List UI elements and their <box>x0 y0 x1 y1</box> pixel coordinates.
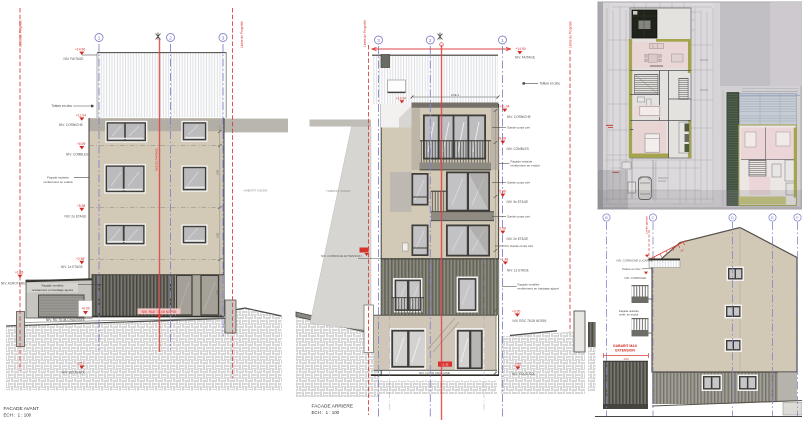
svg-text:HABITAT VOISIN: HABITAT VOISIN <box>244 188 268 192</box>
svg-text:NIV. 3e ETAGE: NIV. 3e ETAGE <box>507 200 529 204</box>
svg-text:NIV. FAITAGE: NIV. FAITAGE <box>515 56 535 60</box>
svg-text:NIV. SOUS-SOL: NIV. SOUS-SOL <box>512 372 535 376</box>
svg-text:+9.08: +9.08 <box>498 137 507 141</box>
svg-text:+5.98: +5.98 <box>77 204 86 208</box>
svg-text:NIV. COUR ANGLAISE: NIV. COUR ANGLAISE <box>419 371 450 375</box>
svg-text:3: 3 <box>222 35 225 40</box>
svg-text:+1.35: +1.35 <box>15 271 24 275</box>
svg-text:Garde-corps ciré: Garde-corps ciré <box>510 244 533 248</box>
svg-text:3: 3 <box>377 38 380 43</box>
svg-text:revêtement en enduit: revêtement en enduit <box>511 164 540 168</box>
svg-text:NIV. COMBLES: NIV. COMBLES <box>507 147 529 151</box>
svg-text:+0.00: +0.00 <box>81 307 90 311</box>
svg-text:NIV. CORNICHE: NIV. CORNICHE <box>507 115 531 119</box>
svg-text:Limite gabarit: Limite gabarit <box>645 216 649 234</box>
svg-text:Toiture en zinc: Toiture en zinc <box>540 82 561 86</box>
svg-text:revêtement en enduit: revêtement en enduit <box>43 180 72 184</box>
svg-text:NIV. RD 78.08-CHAUSSEE: NIV. RD 78.08-CHAUSSEE <box>46 318 85 322</box>
svg-text:FACADE ARRIERE: FACADE ARRIERE <box>312 403 354 409</box>
svg-text:NIV. ACROTERE: NIV. ACROTERE <box>1 281 25 285</box>
svg-text:+14.90: +14.90 <box>75 48 85 52</box>
svg-text:NIV. CORNICHE: NIV. CORNICHE <box>59 123 83 127</box>
svg-text:NIV. CORNICHE EXTENSION: NIV. CORNICHE EXTENSION <box>321 254 362 258</box>
svg-text:+0.00: +0.00 <box>512 309 521 313</box>
svg-text:+11.04: +11.04 <box>500 105 510 109</box>
svg-text:revêtement en bardage ajouré: revêtement en bardage ajouré <box>32 288 74 292</box>
svg-text:+2.98: +2.98 <box>498 227 507 231</box>
svg-text:2: 2 <box>429 38 432 43</box>
svg-text:NIV. 2e ETAGE: NIV. 2e ETAGE <box>507 237 529 241</box>
svg-text:AXE DU FAITAGE: AXE DU FAITAGE <box>155 148 159 171</box>
svg-text:Limite de Propriété: Limite de Propriété <box>240 21 244 48</box>
svg-text:+11.04: +11.04 <box>76 113 86 117</box>
svg-text:NIV. 1e ETAGE: NIV. 1e ETAGE <box>507 269 529 273</box>
svg-text:ECH : 1 : 100: ECH : 1 : 100 <box>4 412 32 417</box>
svg-text:NIV. CORNICHE: NIV. CORNICHE <box>625 276 647 280</box>
svg-text:ECH : 1 : 100: ECH : 1 : 100 <box>312 410 340 415</box>
svg-text:D: D <box>731 215 734 220</box>
svg-text:revêtement en bardage ajouré: revêtement en bardage ajouré <box>518 287 560 291</box>
svg-text:+14.90: +14.90 <box>516 47 526 51</box>
svg-text:NIV. CORNICHE LUCARNE: NIV. CORNICHE LUCARNE <box>617 258 653 262</box>
svg-text:Toiture en zinc: Toiture en zinc <box>622 267 641 271</box>
svg-text:1: 1 <box>98 35 101 40</box>
svg-text:FACADE AVANT: FACADE AVANT <box>4 406 40 412</box>
svg-text:NIV. FAITAGE: NIV. FAITAGE <box>64 57 84 61</box>
svg-text:Limite de Propriété: Limite de Propriété <box>19 20 23 47</box>
svg-text:HABITAT VOISIN: HABITAT VOISIN <box>327 189 351 193</box>
svg-text:Garde-corps ciré: Garde-corps ciré <box>507 126 530 130</box>
svg-text:Limite de Propriété: Limite de Propriété <box>569 21 573 48</box>
svg-text:2: 2 <box>169 35 172 40</box>
svg-text:Toiture en zinc: Toiture en zinc <box>52 104 73 108</box>
svg-text:Garde-corps ciré: Garde-corps ciré <box>507 215 530 219</box>
svg-text:-2.51: -2.51 <box>514 362 522 366</box>
svg-text:2.95: 2.95 <box>215 289 219 295</box>
svg-text:C: C <box>652 215 655 220</box>
svg-text:NIV. RDC 78.08 NGF69: NIV. RDC 78.08 NGF69 <box>513 319 547 323</box>
svg-text:4.60: 4.60 <box>623 357 629 361</box>
svg-text:E: E <box>771 215 774 220</box>
svg-text:NIV. 1e ETAGE: NIV. 1e ETAGE <box>61 265 83 269</box>
svg-text:+1.48: +1.48 <box>500 257 509 261</box>
svg-text:revêt. en enduit: revêt. en enduit <box>619 313 639 317</box>
svg-text:-2.51: -2.51 <box>77 362 85 366</box>
svg-text:GABARIT MAX: GABARIT MAX <box>613 344 638 348</box>
svg-text:1: 1 <box>501 38 504 43</box>
svg-text:+5.98: +5.98 <box>498 190 507 194</box>
svg-text:-1.35: -1.35 <box>442 363 449 367</box>
svg-text:EXTENSION: EXTENSION <box>615 349 635 353</box>
svg-text:NIV. 2e ETAGE: NIV. 2e ETAGE <box>65 214 87 218</box>
svg-text:AXE 2: AXE 2 <box>451 93 460 97</box>
svg-text:B: B <box>605 215 608 220</box>
svg-text:NIV. COMBLES: NIV. COMBLES <box>66 153 88 157</box>
svg-text:Garde-corps ciré: Garde-corps ciré <box>507 181 530 185</box>
svg-text:NIV. SOUS-SOL: NIV. SOUS-SOL <box>62 370 85 374</box>
svg-text:+2.98: +2.98 <box>76 257 85 261</box>
svg-text:+8.99: +8.99 <box>77 142 86 146</box>
svg-text:2.95: 2.95 <box>215 169 219 175</box>
svg-text:+12.04: +12.04 <box>396 96 406 100</box>
svg-text:2.95: 2.95 <box>215 232 219 238</box>
svg-text:Limite de Propriété: Limite de Propriété <box>363 20 367 47</box>
